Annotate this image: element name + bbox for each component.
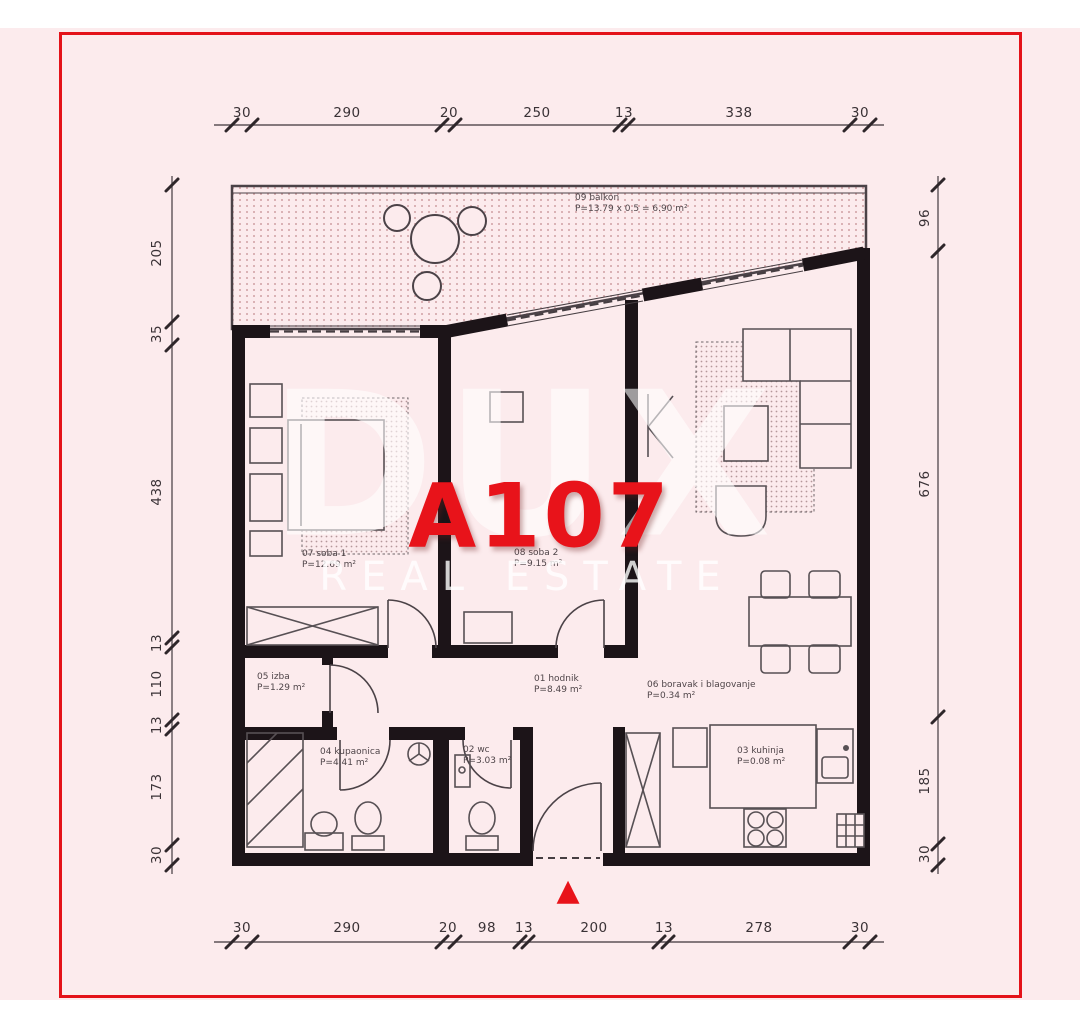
dim-right-3: 30 — [917, 845, 933, 863]
room-name: 04 kupaonica — [320, 747, 380, 758]
stove — [744, 809, 786, 847]
room-label-kuhinja: 03 kuhinja P=0.08 m² — [737, 746, 785, 768]
kitchen-sink — [817, 729, 853, 783]
dim-right-0: 96 — [917, 209, 933, 227]
furniture-wc — [455, 755, 498, 850]
dim-left-5: 13 — [149, 716, 165, 734]
dim-bottom-3: 98 — [478, 920, 496, 936]
room-name: 06 boravak i blagovanje — [647, 680, 756, 691]
dim-left-7: 30 — [149, 846, 165, 864]
room-area: P=1.29 m² — [257, 683, 305, 694]
bath-sink — [305, 812, 343, 850]
dim-left-6: 173 — [149, 773, 165, 800]
dim-bottom-2: 20 — [439, 920, 457, 936]
room-label-hodnik: 01 hodnik P=8.49 m² — [534, 674, 582, 696]
room-name: 05 izba — [257, 672, 305, 683]
dim-bottom-6: 13 — [655, 920, 673, 936]
washing-machine — [408, 743, 430, 765]
room-area: P=0.34 m² — [647, 691, 756, 702]
room-area: P=13.79 x 0.5 = 6.90 m² — [575, 204, 688, 215]
wc-toilet — [466, 802, 498, 850]
entrance-triangle-icon: ▲ — [556, 876, 579, 906]
room-label-wc: 02 wc P=3.03 m² — [463, 745, 511, 767]
dim-top-1: 290 — [333, 105, 360, 121]
dim-bottom-0: 30 — [233, 920, 251, 936]
room-label-balkon: 09 balkon P=13.79 x 0.5 = 6.90 m² — [575, 193, 688, 215]
dim-left-3: 13 — [149, 634, 165, 652]
room-area: P=3.03 m² — [463, 756, 511, 767]
radiator — [837, 814, 864, 847]
dim-bottom-4: 13 — [515, 920, 533, 936]
dim-right-1: 676 — [917, 470, 933, 497]
dim-top-0: 30 — [233, 105, 251, 121]
dim-bottom-1: 290 — [333, 920, 360, 936]
room-area: P=4.41 m² — [320, 758, 380, 769]
dim-top-4: 13 — [615, 105, 633, 121]
dim-left-2: 438 — [149, 478, 165, 505]
dim-top-6: 30 — [851, 105, 869, 121]
room-name: 02 wc — [463, 745, 511, 756]
dim-top-3: 250 — [523, 105, 550, 121]
dim-top-2: 20 — [440, 105, 458, 121]
dim-left-1: 35 — [149, 325, 165, 343]
shower — [247, 733, 303, 847]
room-label-boravak: 06 boravak i blagovanje P=0.34 m² — [647, 680, 756, 702]
room-label-kupaonica: 04 kupaonica P=4.41 m² — [320, 747, 380, 769]
unit-number-label: A107 — [408, 465, 672, 568]
room-name: 09 balkon — [575, 193, 688, 204]
dim-left-4: 110 — [149, 670, 165, 697]
dim-right-2: 185 — [917, 767, 933, 794]
dim-top-5: 338 — [725, 105, 752, 121]
furniture-kitchen — [626, 725, 864, 847]
room-area: P=0.08 m² — [737, 757, 785, 768]
room-area: P=8.49 m² — [534, 685, 582, 696]
room-name: 01 hodnik — [534, 674, 582, 685]
dim-bottom-7: 278 — [745, 920, 772, 936]
bath-toilet — [352, 802, 384, 850]
dim-left-0: 205 — [149, 239, 165, 266]
room-label-izba: 05 izba P=1.29 m² — [257, 672, 305, 694]
dim-bottom-8: 30 — [851, 920, 869, 936]
dim-bottom-5: 200 — [580, 920, 607, 936]
room-name: 03 kuhinja — [737, 746, 785, 757]
